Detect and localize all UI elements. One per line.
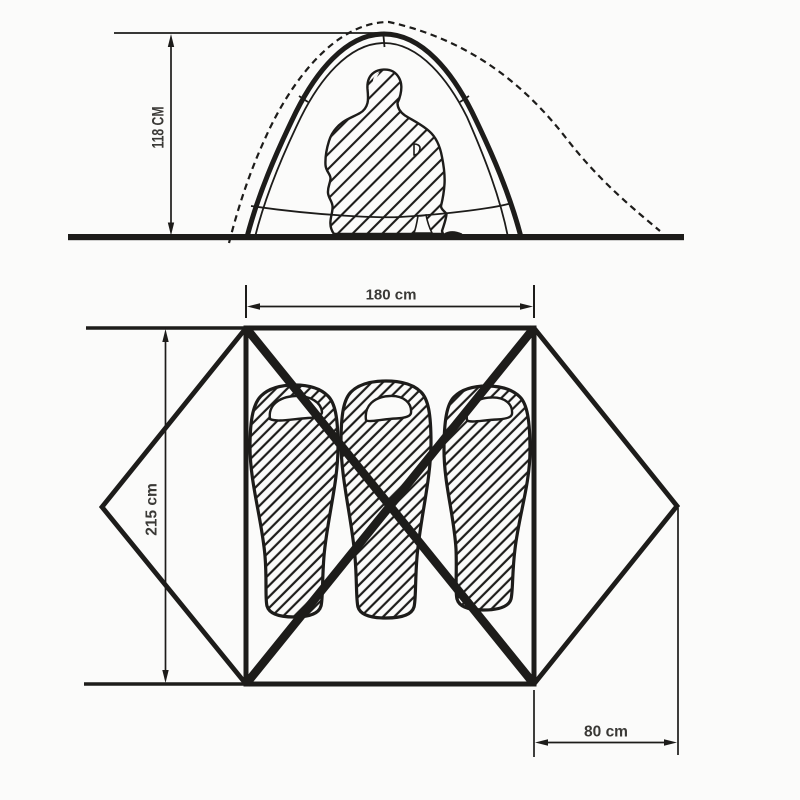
svg-text:180 cm: 180 cm [366,287,417,304]
svg-text:215 cm: 215 cm [144,483,161,536]
svg-text:118 CM: 118 CM [150,106,168,148]
svg-text:80 cm: 80 cm [584,724,628,741]
